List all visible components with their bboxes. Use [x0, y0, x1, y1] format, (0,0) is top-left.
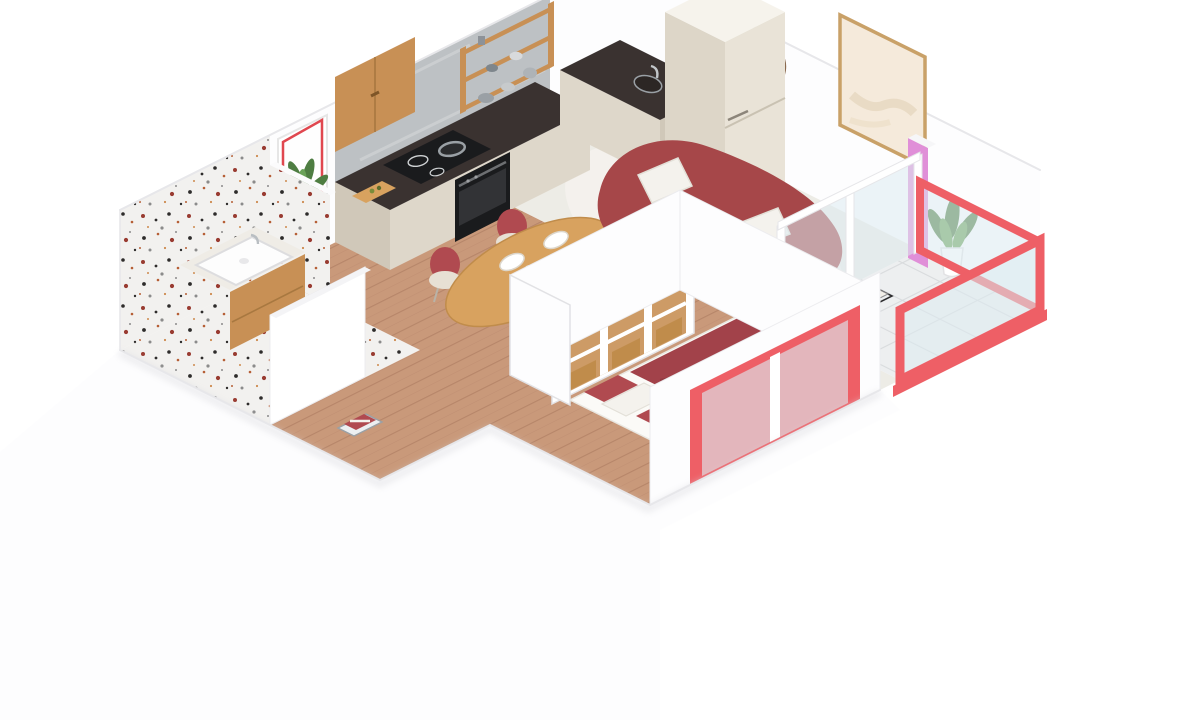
kettle: [523, 68, 537, 79]
window-mullion: [770, 352, 780, 442]
apartment-floorplan-render: [0, 0, 1200, 720]
bowl: [478, 93, 494, 103]
partition-post-2: [846, 188, 854, 288]
